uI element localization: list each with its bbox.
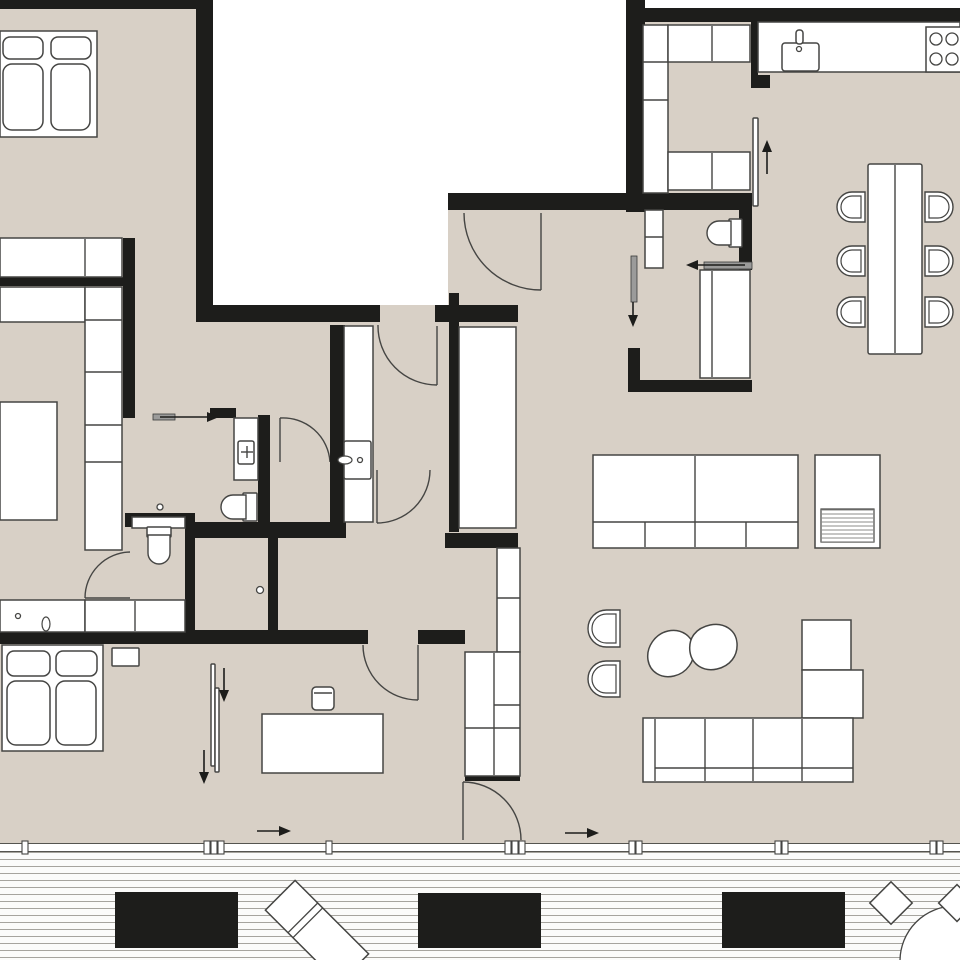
facade-post-2 — [211, 841, 217, 854]
sink-drain — [797, 47, 802, 52]
facade-post-4 — [326, 841, 332, 854]
desk — [262, 714, 383, 773]
wall-bedroom1-bottom — [0, 277, 123, 286]
door-knob-bath — [157, 504, 163, 510]
slide-arrow-partition-1-head — [219, 690, 229, 702]
stove-burner-2 — [946, 33, 958, 45]
flow-arrow-deck-west-head — [279, 826, 291, 836]
facade-post-12 — [930, 841, 936, 854]
drawer-pull — [42, 617, 50, 631]
wall-top-left — [0, 0, 196, 9]
facade-post-0 — [22, 841, 28, 854]
door-knob-hall — [257, 587, 264, 594]
vanity2-column — [344, 326, 373, 522]
facade-post-3 — [218, 841, 224, 854]
bed1-mattress-2 — [51, 64, 90, 130]
slide-arrow-partition-2-head — [199, 772, 209, 784]
coffee-table-blob-2 — [690, 624, 737, 669]
corridor-strip — [497, 548, 520, 652]
wall-dressing-right — [123, 238, 135, 418]
bed2-pillow-2 — [56, 651, 97, 676]
bed2-mattress-2 — [56, 681, 96, 745]
closet-block — [0, 402, 57, 520]
pouf-chair-2 — [588, 661, 620, 697]
wall-hall-lower-bottom — [445, 533, 518, 548]
bed2-pillow-1 — [7, 651, 50, 676]
wc2-cells — [645, 210, 663, 268]
kitchen-faucet — [796, 30, 803, 44]
door-terrace-entry — [463, 782, 521, 840]
door-dressing — [85, 552, 130, 598]
slide-arrow-kitchen-head — [762, 140, 772, 152]
study-cabinet — [465, 652, 520, 776]
sun-lounger — [265, 880, 368, 960]
facade-post-6 — [512, 841, 518, 854]
facade-post-8 — [629, 841, 635, 854]
deck-planter-3 — [722, 892, 845, 948]
toilet2-bowl — [148, 535, 170, 564]
facade-post-7 — [519, 841, 525, 854]
facade-post-1 — [204, 841, 210, 854]
coffee-table-blob-1 — [648, 630, 694, 676]
sun-lounger-body — [265, 880, 368, 960]
courtyard-void-west — [213, 0, 448, 305]
wall-hallbath-left — [330, 325, 345, 538]
vent-grille-stripes — [821, 509, 874, 542]
deck-planter-2 — [418, 893, 541, 948]
wall-closet2-left — [628, 348, 640, 392]
wall-courtyard-bottom-west — [196, 305, 380, 322]
sofa-chaise-top — [802, 620, 851, 670]
pantry-cells-bottom — [668, 152, 750, 190]
wall-kitchen-stub — [751, 75, 770, 88]
wardrobe-column — [85, 287, 122, 550]
courtyard-void-east — [448, 0, 626, 193]
stove-burner-1 — [930, 33, 942, 45]
door-study — [363, 645, 418, 700]
facade-post-13 — [937, 841, 943, 854]
hall-wardrobe-strip — [459, 327, 516, 528]
wall-wc3-right — [185, 513, 195, 640]
bed1-mattress-1 — [3, 64, 43, 130]
wall-courtyard-left — [196, 0, 213, 318]
deck-side-table — [870, 882, 912, 924]
vanity2-handle — [338, 456, 352, 464]
drawer-knob — [16, 614, 21, 619]
dresser-counter-mid — [0, 287, 85, 322]
dresser-counter-top — [0, 238, 122, 277]
bed2-mattress-1 — [7, 681, 50, 745]
wall-hall-right — [449, 293, 459, 532]
plan-graphics — [0, 0, 960, 960]
facade-post-9 — [636, 841, 642, 854]
wall-top-right — [626, 8, 960, 22]
facade-post-10 — [775, 841, 781, 854]
pantry-column — [643, 25, 668, 193]
door-entry-hall — [464, 213, 541, 290]
study-chair — [312, 687, 334, 710]
bed1-pillow-2 — [51, 37, 91, 59]
sofa-body — [643, 718, 853, 782]
wall-entry-top — [448, 193, 644, 210]
vanity2-drain — [358, 458, 363, 463]
kitchen-slider-panel — [753, 118, 758, 206]
stove-burner-4 — [946, 53, 958, 65]
closet2-column — [700, 270, 750, 378]
slide-arrow-wc2-head — [686, 260, 698, 270]
bed1-pillow-1 — [3, 37, 43, 59]
deck-side-table-body — [870, 882, 912, 924]
slide-arrow-entry-head — [628, 315, 638, 327]
wall-closet2-bottom — [640, 380, 752, 392]
sofa-chaise-corner — [802, 670, 863, 718]
toilet1-bowl — [221, 495, 246, 519]
facade-post-5 — [505, 841, 511, 854]
flow-arrow-deck-east-head — [587, 828, 599, 838]
stove-burner-3 — [930, 53, 942, 65]
pouf-chair-1 — [588, 610, 620, 647]
door-bath1 — [280, 418, 330, 462]
toilet3-bowl — [707, 221, 731, 245]
door-hallway-top — [378, 325, 437, 385]
pantry-cells-top — [668, 25, 750, 62]
wall-courtyard-bottom-east — [435, 305, 518, 322]
glass-partition-b — [215, 688, 219, 772]
wall-pantry-bottom — [640, 193, 752, 210]
facade-post-11 — [782, 841, 788, 854]
wall-courtyard-right — [626, 0, 645, 212]
floor-plan — [0, 0, 960, 960]
wall-study-top-east — [418, 630, 465, 644]
deck-planter-1 — [115, 892, 238, 948]
door-hallway-mid — [377, 470, 430, 523]
slider-bar-entry — [631, 256, 637, 302]
wall-bath1-right — [258, 415, 270, 533]
wall-hall-lower-left — [268, 530, 278, 642]
nightstand — [112, 648, 139, 666]
